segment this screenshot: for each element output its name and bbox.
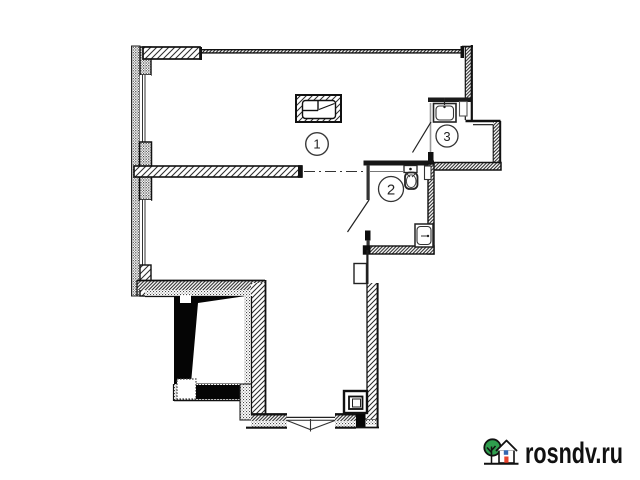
svg-text:rosndv.ru: rosndv.ru — [525, 437, 623, 470]
svg-text:3: 3 — [443, 129, 450, 144]
svg-text:2: 2 — [387, 182, 395, 199]
svg-text:1: 1 — [313, 137, 320, 152]
